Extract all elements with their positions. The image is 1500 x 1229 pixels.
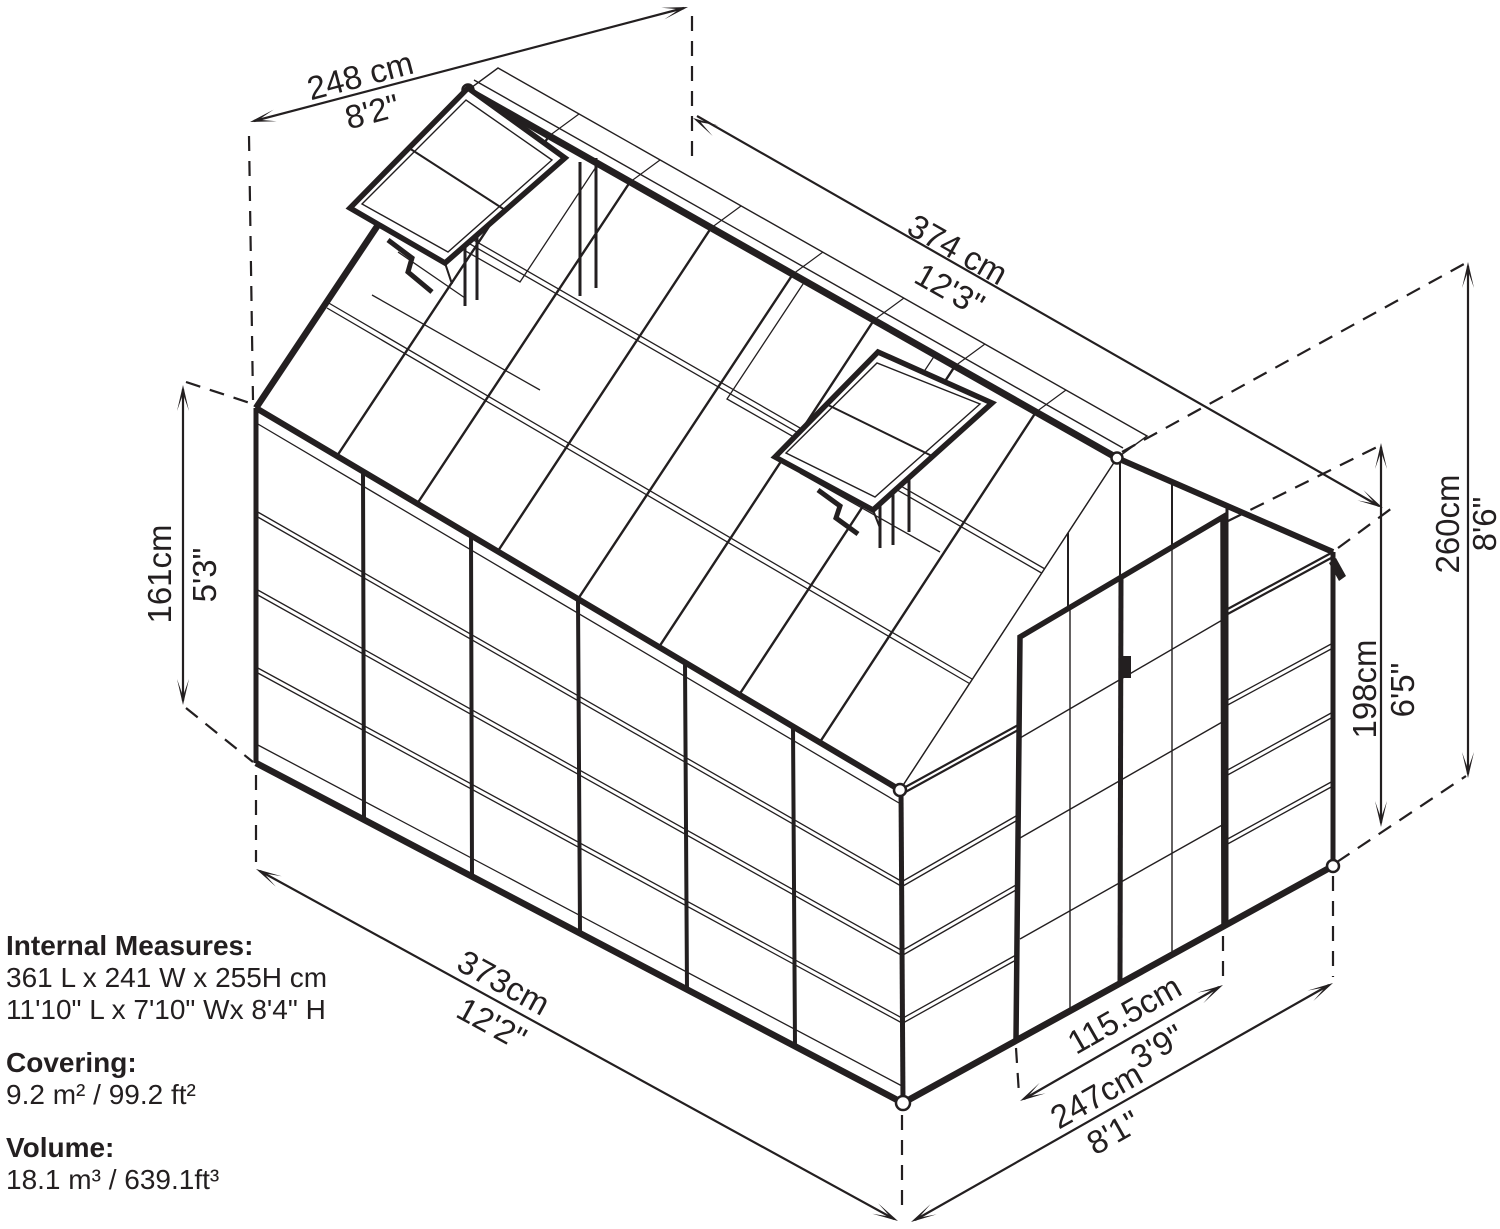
greenhouse-structure (256, 68, 1346, 1110)
wall-height-metric-label: 161cm (141, 524, 178, 623)
greenhouse-dimension-diagram: 248 cm 8'2" 374 cm 12'3" 161cm 5'3" 260c… (0, 0, 1500, 1229)
door-handle (1122, 656, 1131, 678)
door-height-metric-label: 198cm (1346, 639, 1383, 738)
volume-heading: Volume: (6, 1132, 336, 1164)
ridge-height-metric-label: 260cm (1429, 474, 1466, 573)
wall-height-imperial-label: 5'3" (186, 548, 223, 603)
internal-measures-imperial: 11'10" L x 7'10" Wx 8'4" H (6, 994, 336, 1026)
door-height-imperial-label: 6'5" (1384, 663, 1421, 718)
volume-value: 18.1 m³ / 639.1ft³ (6, 1164, 336, 1196)
specifications-block: Internal Measures: 361 L x 241 W x 255H … (6, 930, 336, 1196)
covering-value: 9.2 m² / 99.2 ft² (6, 1079, 336, 1111)
covering-heading: Covering: (6, 1047, 336, 1079)
ridge-height-imperial-label: 8'6" (1466, 497, 1500, 552)
internal-measures-heading: Internal Measures: (6, 930, 336, 962)
internal-measures-metric: 361 L x 241 W x 255H cm (6, 962, 336, 994)
corner-post-front (901, 790, 903, 1103)
